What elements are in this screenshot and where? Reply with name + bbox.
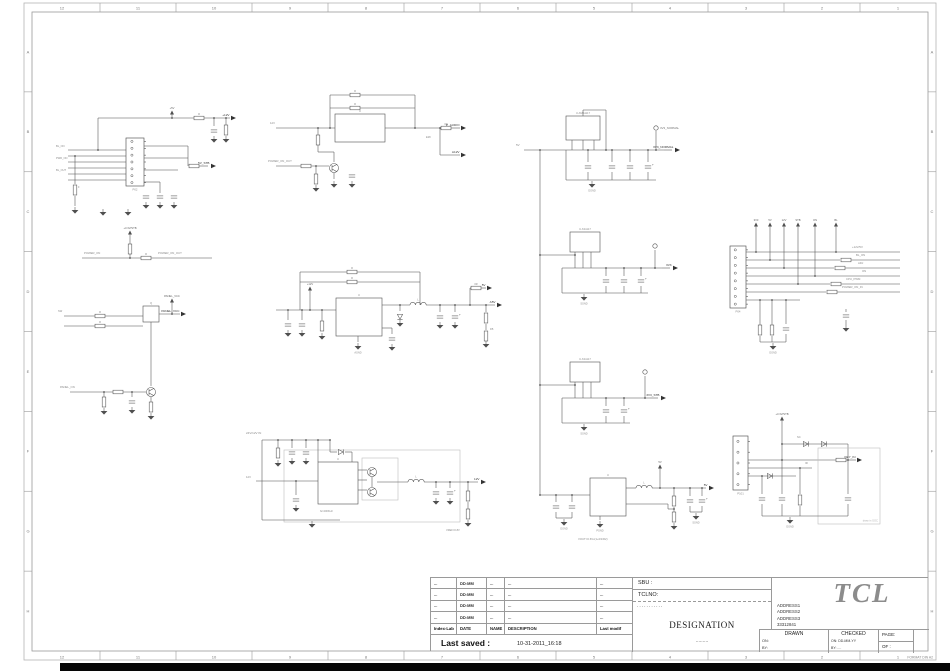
revision-cell: ... <box>487 589 505 600</box>
svg-text:+12V: +12V <box>307 282 314 286</box>
svg-text:POWER_ON_IN: POWER_ON_IN <box>842 285 863 289</box>
last-saved-value: 10-31-2011_16:18 <box>517 641 562 647</box>
svg-text:3V3_STB: 3V3_STB <box>646 393 659 397</box>
svg-text:PGND: PGND <box>596 530 603 533</box>
checked-label: CHECKED <box>829 631 878 637</box>
svg-text:5V: 5V <box>768 218 771 222</box>
svg-text:U AS1117: U AS1117 <box>579 357 591 361</box>
title-block: ...DD-MM............DD-MM............DD-… <box>430 577 928 651</box>
svg-text:12: 12 <box>60 6 65 11</box>
revision-cell: ... <box>431 601 457 612</box>
svg-text:P101: P101 <box>737 492 744 496</box>
svg-text:FB: FB <box>490 327 494 331</box>
checked-by-label: BY: .... <box>831 646 841 650</box>
svg-text:CPU_PWM: CPU_PWM <box>846 277 861 281</box>
format-note: FORMAT DIN A2 <box>907 656 933 660</box>
svg-text:G: G <box>26 529 29 534</box>
svg-text:4: 4 <box>669 654 672 659</box>
svg-text:12: 12 <box>60 654 65 659</box>
svg-text:C: C <box>931 209 934 214</box>
sbu-label: SBU : <box>633 578 771 590</box>
svg-text:4: 4 <box>669 6 672 11</box>
svg-text:0R: 0R <box>474 282 477 286</box>
revision-cell: ... <box>505 601 597 612</box>
revision-cell: ... <box>487 612 505 623</box>
sheet-frame: 121211111010998877665544332211AABBCCDDEE… <box>24 3 936 660</box>
last-saved-label: Last saved : <box>441 638 490 648</box>
svg-text:3V3: 3V3 <box>666 263 672 267</box>
svg-text:SGND: SGND <box>580 303 587 306</box>
cluster-panel-power-switch: RSWRQPANEL_VCCPANEL_VCCPANEL_ON <box>58 294 186 420</box>
page-label: PAGE: <box>879 630 913 642</box>
svg-text:STB: STB <box>795 218 800 222</box>
svg-text:8: 8 <box>365 654 368 659</box>
svg-text:B: B <box>27 129 30 134</box>
svg-text:POWER_ON_OUT: POWER_ON_OUT <box>158 251 182 255</box>
svg-text:L: L <box>415 475 417 479</box>
svg-text:5V: 5V <box>704 483 709 487</box>
svg-text:+3.3V/STB: +3.3V/STB <box>775 412 788 416</box>
svg-text:7: 7 <box>441 6 444 11</box>
svg-text:U: U <box>337 457 339 461</box>
cluster-ldo-3v3-normal: 5VU AMS1117+DGND3V3_NORMAL3V3_NORMAL <box>516 110 680 495</box>
address-line: ADDRESS2 <box>777 609 800 615</box>
svg-text:F: F <box>78 185 80 189</box>
address-block: ADDRESS1ADDRESS2ADDRESS333312841 <box>777 603 800 628</box>
revision-cell: ... <box>597 589 633 600</box>
svg-text:R: R <box>198 112 200 116</box>
revision-cell: ... <box>597 612 633 623</box>
svg-text:IR: IR <box>805 461 808 465</box>
svg-text:C: C <box>27 209 30 214</box>
svg-text:F: F <box>931 449 934 454</box>
drawn-cell: DRAWN ON: BY: <box>760 630 828 653</box>
svg-text:PANEL_VCC: PANEL_VCC <box>164 294 180 298</box>
svg-text:U AS1117: U AS1117 <box>579 227 591 231</box>
revision-cell: ... <box>505 589 597 600</box>
empty-cell <box>913 630 930 653</box>
revision-cell: DD-MM <box>457 578 487 589</box>
svg-text:PANEL_VCC: PANEL_VCC <box>161 309 180 313</box>
svg-text:U: U <box>358 293 360 297</box>
svg-text:P04: P04 <box>736 310 741 314</box>
svg-text:F: F <box>27 449 30 454</box>
revision-cell: DD-MM <box>457 589 487 600</box>
svg-text:BL_ON: BL_ON <box>56 144 65 148</box>
svg-text:3V3_NORMAL: 3V3_NORMAL <box>653 145 674 149</box>
designation-panel: SBU : TCLNO: ........... DESIGNATION ...… <box>633 578 771 652</box>
svg-text:ON: ON <box>862 269 866 273</box>
svg-text:11: 11 <box>136 654 141 659</box>
svg-text:H: H <box>931 608 934 613</box>
tcl-logo: TCL <box>802 578 922 609</box>
svg-text:DGND: DGND <box>588 190 596 193</box>
svg-text:D: D <box>27 289 30 294</box>
bottom-bar <box>60 663 950 671</box>
cluster-ldo-3v3-main: U AS1117+SGND3V3 <box>539 227 678 306</box>
svg-text:5: 5 <box>593 6 596 11</box>
svg-text:A: A <box>27 49 30 54</box>
svg-text:A5V: A5V <box>490 300 497 304</box>
revision-cell: ... <box>505 578 597 589</box>
tclno-label: TCLNO: <box>633 590 771 602</box>
revision-cell: ... <box>487 578 505 589</box>
svg-text:5V: 5V <box>658 460 661 464</box>
svg-text:6: 6 <box>517 654 520 659</box>
svg-text:DGND: DGND <box>769 352 777 355</box>
designation-label: DESIGNATION <box>633 620 771 630</box>
svg-text:POWER_ON: POWER_ON <box>84 251 100 255</box>
svg-text:11: 11 <box>136 6 141 11</box>
svg-text:10: 10 <box>212 654 217 659</box>
svg-text:L: L <box>643 481 645 485</box>
svg-text:+12V: +12V <box>222 113 230 117</box>
svg-text:H: H <box>27 608 30 613</box>
svg-text:B: B <box>931 129 934 134</box>
svg-text:2: 2 <box>821 6 824 11</box>
svg-text:R: R <box>99 320 101 324</box>
svg-text:1: 1 <box>897 6 900 11</box>
svg-text:R: R <box>354 89 356 93</box>
schematic-canvas: 121211111010998877665544332211AABBCCDDEE… <box>0 0 950 671</box>
drawn-label: DRAWN <box>760 631 828 637</box>
svg-text:5V: 5V <box>516 143 520 147</box>
svg-text:7: 7 <box>441 654 444 659</box>
approval-row: DRAWN ON: BY: CHECKED ON: DD-MM-YY BY: .… <box>759 629 929 652</box>
svg-text:KEY_IN: KEY_IN <box>844 455 855 459</box>
last-saved-row: Last saved : 10-31-2011_16:18 <box>431 635 633 652</box>
svg-text:6: 6 <box>517 6 520 11</box>
revision-header-cell: NAME <box>487 624 505 635</box>
svg-text:12V: 12V <box>246 475 251 479</box>
cluster-audio-12v-switch: RR12VU0RP_AUDIOA12VEMIPOWER_ON_OUT <box>268 89 466 192</box>
svg-text:ADJ: ADJ <box>858 261 864 265</box>
svg-text:+: + <box>645 277 647 281</box>
svg-text:5V_STB: 5V_STB <box>198 161 210 165</box>
svg-text:R: R <box>351 276 353 280</box>
svg-text:NC: NC <box>797 435 801 439</box>
svg-text:R: R <box>145 252 147 256</box>
svg-text:+12V/5V: +12V/5V <box>852 245 863 249</box>
address-line: ADDRESS3 <box>777 616 800 622</box>
svg-text:P_AUDIO: P_AUDIO <box>446 123 460 127</box>
cluster-io-connector: P043V35V12VSTBONBL+12V/5VBL_ONADJONCPU_P… <box>730 218 900 355</box>
page-cell: PAGE: OF : <box>878 630 913 653</box>
revision-cell: DD-MM <box>457 601 487 612</box>
svg-text:5: 5 <box>593 654 596 659</box>
svg-text:AGND: AGND <box>354 352 361 355</box>
svg-text:A12V: A12V <box>452 150 461 154</box>
svg-text:3V3_NORMAL: 3V3_NORMAL <box>660 126 680 130</box>
svg-text:DGND: DGND <box>786 526 794 529</box>
revision-header-cell: Index-Lab <box>431 624 457 635</box>
schematic-sheet: 121211111010998877665544332211AABBCCDDEE… <box>0 0 950 671</box>
cluster-audio-5v-buck: RR+12VUL+A5V0R5VFBAGND <box>276 266 502 355</box>
svg-text:R: R <box>99 310 101 314</box>
svg-text:D: D <box>931 289 934 294</box>
svg-text:9: 9 <box>289 654 292 659</box>
cluster-power-on-link: +3.3V/STBRPOWER_ONPOWER_ON_OUT <box>82 226 212 260</box>
revision-cell: ... <box>487 601 505 612</box>
svg-text:+: + <box>459 313 461 317</box>
svg-text:BL_ON: BL_ON <box>856 253 865 257</box>
cluster-ldo-3v3-stb: U AS1117+SGND3V3_STB <box>539 357 666 436</box>
svg-text:9: 9 <box>289 6 292 11</box>
svg-text:fs=400KHz: fs=400KHz <box>320 509 333 513</box>
svg-text:E: E <box>27 369 30 374</box>
svg-text:+: + <box>652 163 654 167</box>
revision-cell: ... <box>597 601 633 612</box>
svg-text:VOUT=0.6Vx(1+R1/R2): VOUT=0.6Vx(1+R1/R2) <box>578 537 608 541</box>
svg-text:VREF=0.8V: VREF=0.8V <box>446 528 460 532</box>
cluster-main-buck-24v: 24V/12V INUfs=400KHzL+12VVREF=0.8V12V <box>246 431 486 532</box>
revision-header-cell: Last modif <box>597 624 633 635</box>
cluster-buck-5v-bottom: DGNDUL5V+SGND5VVOUT=0.6Vx(1+R1/R2)PGND <box>539 460 714 541</box>
revision-cell: ... <box>431 589 457 600</box>
svg-text:BL_OUT: BL_OUT <box>56 168 67 172</box>
svg-text:PWR_ON: PWR_ON <box>56 156 68 160</box>
drawn-on-label: ON: <box>762 639 769 643</box>
svg-text:8: 8 <box>365 6 368 11</box>
svg-text:U: U <box>607 473 609 477</box>
svg-text:A: A <box>931 49 934 54</box>
svg-text:5V: 5V <box>482 283 487 287</box>
svg-text:SGND: SGND <box>692 522 699 525</box>
cluster-keypad-ir: P101+3.3V/STBNCKEY_INdraw in SOCIRDGND <box>733 412 880 529</box>
svg-text:draw in SOC: draw in SOC <box>863 519 878 523</box>
drawn-by-label: BY: <box>762 646 768 650</box>
svg-text:EMI: EMI <box>426 135 431 139</box>
checked-cell: CHECKED ON: DD-MM-YY BY: .... <box>828 630 878 653</box>
svg-text:BL: BL <box>834 218 838 222</box>
svg-text:12V: 12V <box>270 121 275 125</box>
revision-cell: ... <box>505 612 597 623</box>
svg-text:POWER_ON_OUT: POWER_ON_OUT <box>268 159 292 163</box>
svg-text:3: 3 <box>745 6 748 11</box>
svg-text:P02: P02 <box>133 188 138 192</box>
svg-text:+: + <box>628 407 630 411</box>
svg-text:E: E <box>931 369 934 374</box>
svg-text:10: 10 <box>212 6 217 11</box>
revision-cell: ... <box>431 612 457 623</box>
svg-text:+3.3V/STB: +3.3V/STB <box>123 226 136 230</box>
svg-text:DGND: DGND <box>560 528 568 531</box>
svg-text:12V: 12V <box>474 477 480 481</box>
svg-text:SGND: SGND <box>580 433 587 436</box>
svg-text:R: R <box>351 266 353 270</box>
svg-text:U: U <box>359 109 361 113</box>
svg-text:1: 1 <box>897 654 900 659</box>
cluster-power-input-connector: R+12V+5VBL_ONPWR_ONBL_OUTP025V_STBF <box>56 106 236 216</box>
revision-cell: ... <box>597 578 633 589</box>
svg-text:G: G <box>930 529 933 534</box>
revision-cell: DD-MM <box>457 612 487 623</box>
revision-cell: ... <box>431 578 457 589</box>
revision-header-cell: DESCRIPTION <box>505 624 597 635</box>
svg-text:R: R <box>354 102 356 106</box>
svg-text:3V3: 3V3 <box>754 218 759 222</box>
svg-text:Q: Q <box>150 301 152 305</box>
tclno-dots: ........... <box>637 603 663 609</box>
svg-text:24V/12V IN: 24V/12V IN <box>246 431 261 435</box>
svg-text:PANEL_ON: PANEL_ON <box>60 385 75 389</box>
designation-dots: ......... <box>633 638 771 644</box>
svg-text:+: + <box>454 489 456 493</box>
svg-text:+5V: +5V <box>170 106 175 110</box>
revision-table: ...DD-MM............DD-MM............DD-… <box>431 578 633 635</box>
address-line: 33312841 <box>777 622 800 628</box>
svg-text:SW: SW <box>58 309 63 313</box>
checked-on-label: ON: DD-MM-YY <box>831 639 856 643</box>
of-label: OF : <box>879 642 913 649</box>
svg-text:+: + <box>706 497 708 501</box>
revision-header-cell: DATE <box>457 624 487 635</box>
svg-text:L: L <box>417 298 419 302</box>
svg-text:ON: ON <box>813 218 817 222</box>
svg-text:2: 2 <box>821 654 824 659</box>
svg-text:12V: 12V <box>782 218 787 222</box>
logo-panel: TCL ADDRESS1ADDRESS2ADDRESS333312841 <box>771 578 929 629</box>
svg-text:3: 3 <box>745 654 748 659</box>
